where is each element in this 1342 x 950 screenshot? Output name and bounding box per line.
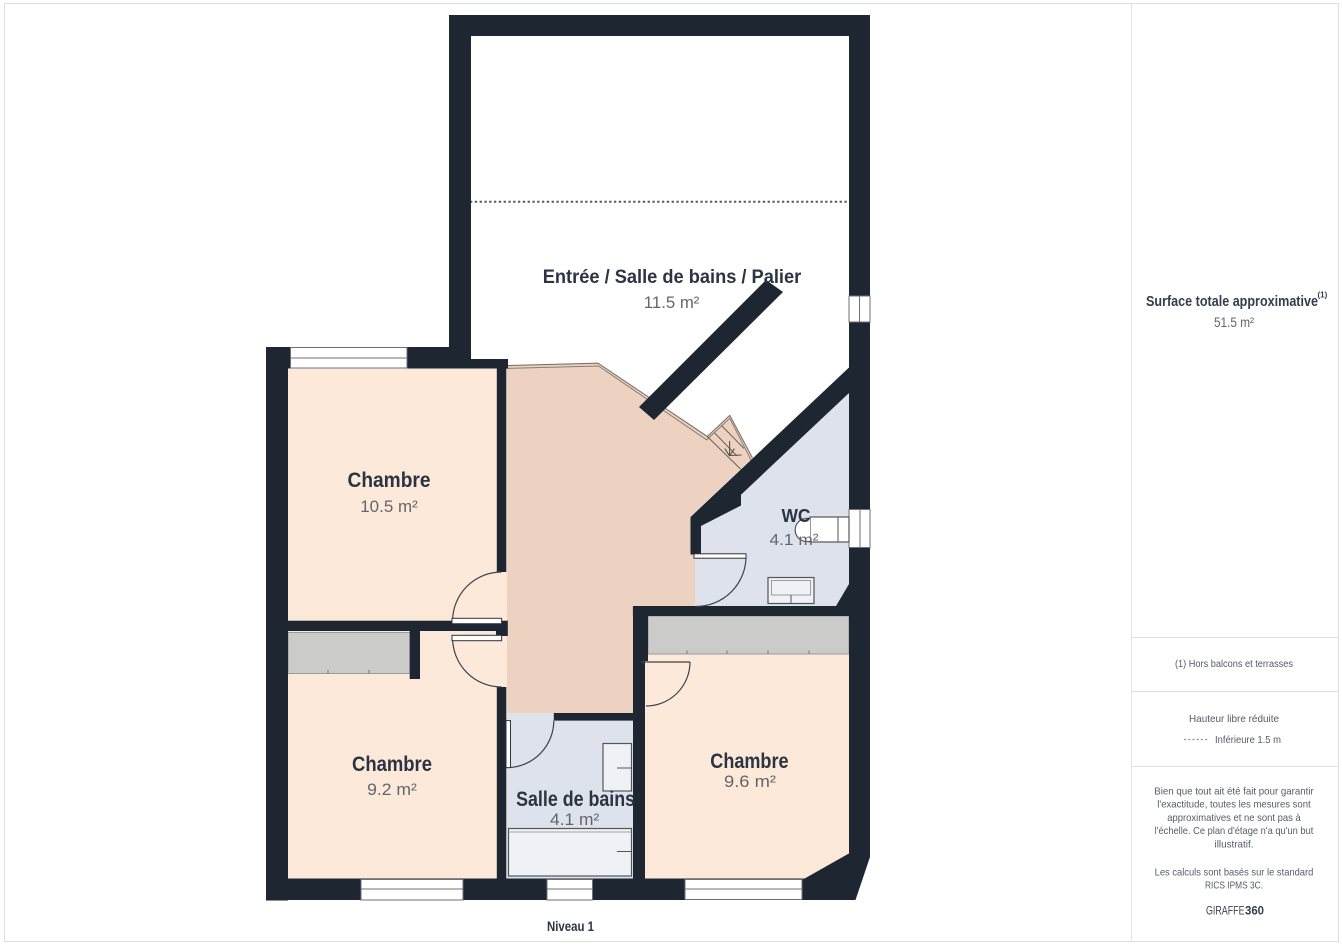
svg-text:l'échelle. Ce plan d'étage n'a: l'échelle. Ce plan d'étage n'a qu'un but xyxy=(1155,825,1314,837)
svg-text:GIRAFFE: GIRAFFE xyxy=(1206,904,1245,918)
svg-text:Inférieure 1.5 m: Inférieure 1.5 m xyxy=(1215,734,1281,746)
svg-text:360: 360 xyxy=(1245,904,1264,918)
svg-text:l'exactitude, toutes les mesur: l'exactitude, toutes les mesures sont xyxy=(1157,799,1310,811)
svg-text:Les calculs sont basés sur le: Les calculs sont basés sur le standard xyxy=(1155,866,1314,878)
svg-text:RICS IPMS 3C.: RICS IPMS 3C. xyxy=(1205,879,1263,891)
svg-text:illustratif.: illustratif. xyxy=(1215,838,1254,850)
svg-text:(1) Hors balcons et terrasses: (1) Hors balcons et terrasses xyxy=(1175,658,1293,670)
svg-text:51.5 m²: 51.5 m² xyxy=(1214,315,1254,330)
svg-text:Surface totale approximative: Surface totale approximative xyxy=(1146,294,1318,310)
svg-text:Hauteur libre réduite: Hauteur libre réduite xyxy=(1189,713,1279,725)
svg-text:(1): (1) xyxy=(1318,291,1328,300)
svg-text:approximatives et ne sont pas: approximatives et ne sont pas à xyxy=(1167,812,1301,824)
svg-text:Bien que tout ait été fait pou: Bien que tout ait été fait pour garantir xyxy=(1154,786,1314,798)
svg-text:Niveau 1: Niveau 1 xyxy=(547,919,594,934)
